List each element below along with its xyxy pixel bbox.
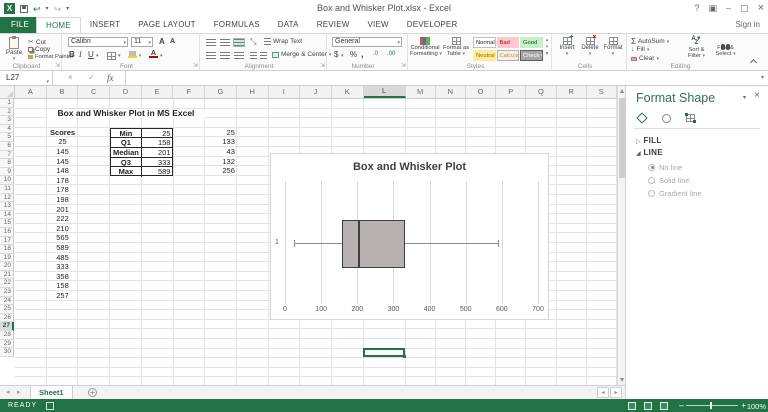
zoom-level[interactable]: 100% — [747, 402, 766, 411]
collapse-ribbon-icon[interactable] — [750, 59, 757, 66]
cell-style-normal[interactable]: Normal — [473, 37, 496, 48]
underline-button[interactable]: U — [88, 50, 94, 59]
sign-in-link[interactable]: Sign in — [736, 17, 760, 33]
find-select-icon — [712, 37, 739, 45]
undo-dropdown-icon[interactable]: ▾ — [46, 5, 49, 12]
tab-file[interactable]: FILE — [0, 17, 40, 33]
font-color-dropdown-icon[interactable]: ▾ — [160, 53, 163, 59]
column-header-S[interactable]: S — [587, 86, 617, 98]
stats-row: Median201 — [111, 148, 172, 158]
cut-icon: ✂ — [28, 38, 34, 46]
format-painter-icon — [28, 55, 33, 59]
x-tick-label: 0 — [283, 306, 287, 313]
stat-label[interactable]: Q1 — [111, 138, 142, 148]
median-line — [358, 220, 360, 268]
score-cell[interactable]: 158 — [47, 281, 79, 291]
save-icon[interactable] — [20, 5, 28, 13]
accounting-dropdown-icon[interactable]: ▾ — [341, 53, 344, 59]
italic-button[interactable]: I — [79, 50, 82, 59]
line-option-solid-line[interactable]: Solid line — [648, 175, 689, 185]
column-header-L[interactable]: L — [364, 86, 406, 98]
vertical-scrollbar[interactable] — [617, 86, 625, 385]
font-color-icon[interactable]: A — [149, 49, 158, 58]
minimize-icon[interactable]: – — [726, 3, 731, 13]
score-cell[interactable]: 25 — [47, 137, 79, 147]
grid-line — [15, 376, 617, 377]
tab-review[interactable]: REVIEW — [308, 17, 359, 33]
row-header-10[interactable]: 10 — [0, 176, 14, 185]
font-size-select[interactable]: 11▾ — [131, 37, 153, 47]
effects-icon[interactable] — [660, 113, 672, 125]
stat-label[interactable]: Q3 — [111, 158, 142, 168]
tab-view[interactable]: VIEW — [358, 17, 397, 33]
column-header-K[interactable]: K — [332, 86, 364, 98]
close-icon[interactable]: × — [758, 2, 764, 14]
column-header-P[interactable]: P — [496, 86, 526, 98]
row-header-27[interactable]: 27 — [0, 322, 14, 331]
qat-customize-icon[interactable]: ▾ — [66, 5, 69, 12]
fill-icon: ↓ — [631, 46, 635, 53]
grid-line — [15, 328, 617, 329]
column-header-R[interactable]: R — [557, 86, 587, 98]
ribbon-tab-row: FILE HOME INSERTPAGE LAYOUTFORMULASDATAR… — [0, 17, 768, 33]
alignment-dialog-launcher[interactable]: ⇲ — [320, 62, 325, 69]
status-bar: READY – + 100% — [0, 399, 768, 412]
hscroll-right-icon[interactable]: ▸ — [610, 387, 622, 398]
box-whisker-chart[interactable]: Box and Whisker Plot01002003004005006007… — [270, 153, 549, 320]
score-cell[interactable]: 485 — [47, 253, 79, 263]
row-header-9[interactable]: 9 — [0, 168, 14, 177]
radio-icon — [648, 164, 655, 171]
row-header-8[interactable]: 8 — [0, 159, 14, 168]
grid-line — [15, 367, 617, 368]
insert-function-icon[interactable]: fx — [107, 71, 114, 85]
cut-button[interactable]: ✂Cut — [28, 38, 46, 46]
score-cell[interactable]: 589 — [47, 243, 79, 253]
grid-line — [15, 348, 617, 349]
zoom-out-icon[interactable]: – — [679, 400, 684, 410]
score-cell[interactable]: 333 — [47, 262, 79, 272]
zoom-slider[interactable] — [686, 405, 738, 406]
column-header-E[interactable]: E — [142, 86, 174, 98]
cell-style-calculation[interactable]: Calculation — [497, 50, 520, 61]
column-header-J[interactable]: J — [300, 86, 332, 98]
clipboard-dialog-launcher[interactable]: ⇲ — [55, 62, 60, 69]
row-header-14[interactable]: 14 — [0, 211, 14, 220]
enter-icon[interactable]: ✓ — [88, 71, 95, 85]
cell-styles-gallery: NormalBadGoodNeutralCalculationCheck Cel… — [473, 37, 543, 62]
sort-filter-icon: A▼Z — [683, 37, 710, 45]
row-header-6[interactable]: 6 — [0, 142, 14, 151]
row-header-28[interactable]: 28 — [0, 331, 14, 340]
y-category-label: 1 — [275, 239, 279, 246]
stats-row: Q3333 — [111, 158, 172, 168]
quick-access-toolbar: X ↩▾ ↪ ▾ — [4, 2, 69, 15]
stat-value[interactable]: 201 — [143, 148, 171, 158]
clipboard-group: Paste ▾ ✂Cut Copy Format Painter Clipboa… — [0, 34, 62, 70]
fill-color-icon[interactable] — [128, 51, 137, 58]
sheet-title: Box and Whisker Plot in MS Excel — [47, 109, 206, 119]
stat-value[interactable]: 333 — [143, 158, 171, 168]
column-header-I[interactable]: I — [269, 86, 301, 98]
row-header-15[interactable]: 15 — [0, 219, 14, 228]
score-cell[interactable]: 145 — [47, 157, 79, 167]
align-right-icon[interactable] — [234, 52, 244, 59]
cancel-icon[interactable]: × — [68, 71, 73, 85]
row-header-19[interactable]: 19 — [0, 254, 14, 263]
number-format-select[interactable]: General▾ — [332, 37, 402, 47]
number-group: General▾ $ ▾ % , .0 .00 Number ⇲ — [327, 34, 408, 70]
editing-group: ΣAutoSum▾ ↓Fill▾ Clear▾ A▼Z Sort & Filte… — [627, 34, 742, 70]
stat-label[interactable]: Max — [111, 167, 142, 177]
formula-bar-expand-icon[interactable]: ▾ — [761, 71, 764, 85]
grid-line — [15, 146, 617, 147]
row-header-3[interactable]: 3 — [0, 116, 14, 125]
grid-line — [15, 357, 617, 358]
find-select-button[interactable]: Find & Select ▾ — [712, 37, 739, 57]
row-header-24[interactable]: 24 — [0, 297, 14, 306]
column-headers: ABCDEFGHIJKLMNOPQRS — [15, 86, 617, 99]
sheet-nav-left-icon[interactable]: ◂ — [6, 386, 10, 399]
score-cell[interactable]: 198 — [47, 195, 79, 205]
merge-center-button[interactable]: Merge & Center▾ — [272, 51, 331, 58]
insert-icon: + — [563, 37, 572, 45]
row-header-2[interactable]: 2 — [0, 108, 14, 117]
pane-close-icon[interactable]: × — [754, 90, 760, 101]
font-dialog-launcher[interactable]: ⇲ — [193, 62, 198, 69]
delete-icon: × — [586, 37, 595, 45]
stat-extra[interactable]: 256 — [205, 166, 235, 176]
macro-record-icon[interactable] — [46, 402, 54, 410]
score-cell[interactable]: 210 — [47, 224, 79, 234]
row-header-7[interactable]: 7 — [0, 151, 14, 160]
align-left-icon[interactable] — [206, 52, 216, 59]
column-header-F[interactable]: F — [173, 86, 205, 98]
stat-label[interactable]: Median — [111, 148, 142, 158]
radio-icon — [648, 190, 655, 197]
x-tick-label: 500 — [460, 306, 472, 313]
pane-title: Format Shape — [636, 91, 715, 105]
stat-extra[interactable]: 25 — [205, 128, 235, 138]
autosum-button[interactable]: ΣAutoSum▾ — [631, 37, 669, 46]
column-header-G[interactable]: G — [205, 86, 237, 98]
row-header-23[interactable]: 23 — [0, 288, 14, 297]
wrap-text-button[interactable]: Wrap Text — [264, 38, 302, 45]
row-header-21[interactable]: 21 — [0, 271, 14, 280]
align-top-icon[interactable] — [206, 39, 216, 46]
hscroll-left-icon[interactable]: ◂ — [597, 387, 609, 398]
row-header-29[interactable]: 29 — [0, 340, 14, 349]
stats-row: Max589 — [111, 167, 172, 177]
fill-button[interactable]: ↓Fill▾ — [631, 46, 649, 53]
clear-icon — [631, 57, 637, 61]
pane-dropdown-icon[interactable]: ▾ — [743, 94, 746, 101]
page-layout-view-icon[interactable] — [644, 402, 652, 410]
whisker-cap-max — [498, 240, 499, 247]
x-tick-label: 300 — [388, 306, 400, 313]
whisker-cap-min — [294, 240, 295, 247]
column-header-A[interactable]: A — [15, 86, 47, 98]
row-headers: 1234567891011121314151617181920212223242… — [0, 99, 15, 357]
row-header-25[interactable]: 25 — [0, 305, 14, 314]
window-title: Box and Whisker Plot.xlsx - Excel — [150, 3, 618, 13]
autosum-icon: Σ — [631, 37, 636, 46]
conditional-formatting-button[interactable]: Conditional Formatting ▾ — [410, 37, 440, 57]
column-header-D[interactable]: D — [110, 86, 142, 98]
tab-data[interactable]: DATA — [269, 17, 308, 33]
row-header-12[interactable]: 12 — [0, 194, 14, 203]
tab-formulas[interactable]: FORMULAS — [205, 17, 269, 33]
number-dialog-launcher[interactable]: ⇲ — [401, 62, 406, 69]
clear-button[interactable]: Clear▾ — [631, 55, 659, 62]
grid-line — [15, 127, 617, 128]
score-cell[interactable]: 148 — [47, 166, 79, 176]
x-tick-label: 400 — [424, 306, 436, 313]
score-cell[interactable]: 145 — [47, 147, 79, 157]
increase-indent-icon[interactable] — [260, 52, 267, 59]
column-header-H[interactable]: H — [237, 86, 269, 98]
format-as-table-button[interactable]: Format as Table ▾ — [441, 37, 471, 57]
chart-gridline — [502, 181, 503, 304]
stat-extra[interactable]: 133 — [205, 137, 235, 147]
font-group: Calibri▾ 11▾ A A B I U ▾ ▾ ▾ A ▾ Font ⇲ — [62, 34, 200, 70]
size-properties-icon[interactable] — [684, 113, 696, 125]
line-option-no-line[interactable]: No line — [648, 162, 682, 172]
stat-extra[interactable]: 132 — [205, 157, 235, 167]
row-header-5[interactable]: 5 — [0, 133, 14, 142]
comma-icon[interactable]: , — [361, 49, 364, 59]
score-cell[interactable]: 178 — [47, 176, 79, 186]
sheet-nav-right-icon[interactable]: ▸ — [17, 386, 21, 399]
merge-center-icon — [272, 52, 279, 58]
fill-color-dropdown-icon[interactable]: ▾ — [139, 53, 142, 59]
row-header-11[interactable]: 11 — [0, 185, 14, 194]
sheet-tab-bar: ◂ ▸ Sheet1 + ◂ ▸ — [0, 385, 625, 399]
x-tick-label: 700 — [532, 306, 544, 313]
score-cell[interactable]: 201 — [47, 205, 79, 215]
paste-icon — [9, 37, 19, 49]
grid-line — [15, 338, 617, 339]
align-bottom-icon[interactable] — [234, 39, 244, 46]
line-expand-icon: ◢ — [636, 151, 641, 157]
chart-gridline — [285, 181, 286, 304]
sheet-tab-sheet1[interactable]: Sheet1 — [30, 386, 73, 399]
shrink-font-icon[interactable]: A — [170, 38, 175, 45]
borders-dropdown-icon[interactable]: ▾ — [118, 53, 121, 59]
copy-button[interactable]: Copy — [28, 46, 50, 53]
add-sheet-button[interactable]: + — [88, 388, 97, 397]
tab-page-layout[interactable]: PAGE LAYOUT — [129, 17, 204, 33]
cell-style-neutral[interactable]: Neutral — [473, 50, 496, 61]
cell-style-bad[interactable]: Bad — [497, 37, 520, 48]
row-header-30[interactable]: 30 — [0, 348, 14, 357]
column-header-Q[interactable]: Q — [526, 86, 556, 98]
row-header-22[interactable]: 22 — [0, 279, 14, 288]
fill-line-icon[interactable] — [636, 113, 648, 125]
worksheet: ABCDEFGHIJKLMNOPQRS 12345678910111213141… — [0, 86, 625, 385]
restore-icon[interactable]: ▢ — [740, 3, 749, 14]
borders-icon[interactable] — [107, 52, 116, 60]
radio-icon — [648, 177, 655, 184]
percent-icon[interactable]: % — [350, 50, 357, 59]
redo-icon[interactable]: ↪ — [54, 4, 62, 14]
wrap-text-icon — [264, 38, 271, 45]
row-header-13[interactable]: 13 — [0, 202, 14, 211]
chart-gridline — [538, 181, 539, 304]
box[interactable] — [342, 220, 405, 268]
radio-label: Gradient line — [659, 189, 702, 198]
styles-group: Conditional Formatting ▾ Format as Table… — [408, 34, 552, 70]
selected-cell[interactable] — [363, 348, 405, 358]
tab-home[interactable]: HOME — [36, 17, 81, 33]
stat-value[interactable]: 158 — [143, 138, 171, 148]
undo-icon[interactable]: ↩ — [33, 4, 41, 14]
scroll-down-icon[interactable] — [620, 378, 624, 382]
row-header-17[interactable]: 17 — [0, 237, 14, 246]
format-button[interactable]: Format ▾ — [602, 37, 624, 57]
ribbon-display-icon[interactable]: ▣ — [709, 3, 718, 14]
selection-fill-handle[interactable] — [403, 355, 406, 358]
align-middle-icon[interactable] — [220, 39, 230, 46]
title-bar: X ↩▾ ↪ ▾ Box and Whisker Plot.xlsx - Exc… — [0, 0, 768, 17]
score-cell[interactable]: 222 — [47, 214, 79, 224]
stats-row: Q1158 — [111, 138, 172, 148]
formula-bar: L27▾ × ✓ fx ▾ — [0, 71, 768, 86]
insert-button[interactable]: + Insert ▾ — [556, 37, 578, 57]
zoom-in-icon[interactable]: + — [741, 401, 746, 410]
stats-table: Min25Q1158Median201Q3333Max589 — [110, 128, 173, 176]
copy-icon — [28, 47, 33, 52]
format-icon — [609, 37, 618, 45]
fill-collapse-icon: ▷ — [636, 139, 641, 145]
cells-area[interactable]: Box and Whisker Plot in MS ExcelScores25… — [15, 99, 617, 385]
bold-button[interactable]: B — [69, 50, 75, 59]
tab-insert[interactable]: INSERT — [81, 17, 129, 33]
sort-filter-button[interactable]: A▼Z Sort & Filter ▾ — [683, 37, 710, 59]
cells-group: + Insert ▾ × Delete ▾ Format ▾ Cells — [552, 34, 627, 70]
decrease-decimal-icon[interactable]: .00 — [387, 51, 395, 57]
score-cell[interactable]: 358 — [47, 272, 79, 282]
x-tick-label: 100 — [315, 306, 327, 313]
row-header-20[interactable]: 20 — [0, 262, 14, 271]
help-icon[interactable]: ? — [695, 3, 700, 13]
formula-input[interactable] — [125, 71, 754, 85]
row-header-26[interactable]: 26 — [0, 314, 14, 323]
tab-developer[interactable]: DEVELOPER — [398, 17, 467, 33]
increase-decimal-icon[interactable]: .0 — [373, 51, 378, 57]
pane-divider — [634, 128, 760, 129]
excel-app-icon[interactable]: X — [4, 3, 15, 14]
x-tick-label: 600 — [496, 306, 508, 313]
grid-line — [15, 136, 617, 137]
score-cell[interactable]: 178 — [47, 185, 79, 195]
stat-value[interactable]: 25 — [143, 129, 171, 139]
accounting-icon[interactable]: $ — [334, 50, 338, 59]
select-all-corner[interactable] — [0, 86, 15, 99]
delete-button[interactable]: × Delete ▾ — [579, 37, 601, 57]
format-shape-pane: Format Shape ▾ × ▷ FILL ◢ LINE No lineSo… — [625, 86, 768, 399]
name-box[interactable]: L27▾ — [0, 71, 53, 85]
scores-header: Scores — [47, 128, 79, 138]
decrease-indent-icon[interactable] — [250, 52, 257, 59]
score-cell[interactable]: 565 — [47, 233, 79, 243]
conditional-formatting-icon — [420, 37, 430, 45]
column-header-N[interactable]: N — [436, 86, 466, 98]
row-header-4[interactable]: 4 — [0, 125, 14, 134]
fill-section-header[interactable]: ▷ FILL — [636, 136, 662, 145]
paste-button[interactable]: Paste ▾ — [3, 37, 25, 62]
line-option-gradient-line[interactable]: Gradient line — [648, 188, 702, 198]
zoom-slider-thumb[interactable] — [710, 402, 712, 409]
gallery-scroll[interactable]: ▴▾▼ — [544, 37, 550, 58]
stat-value[interactable]: 589 — [143, 167, 171, 177]
center-icon[interactable] — [220, 52, 230, 59]
column-header-B[interactable]: B — [47, 86, 79, 98]
stat-extra[interactable]: 43 — [205, 147, 235, 157]
font-family-select[interactable]: Calibri▾ — [68, 37, 128, 47]
radio-label: No line — [659, 163, 682, 172]
alignment-group: ⤡ Wrap Text Merge & Center▾ Alignment ⇲ — [200, 34, 327, 70]
grow-font-icon[interactable]: A — [159, 37, 165, 46]
radio-label: Solid line — [659, 176, 689, 185]
cell-style-good[interactable]: Good — [520, 37, 543, 48]
line-section-header[interactable]: ◢ LINE — [636, 148, 663, 157]
format-as-table-icon — [452, 37, 461, 45]
stats-row: Min25 — [111, 129, 172, 139]
stat-label[interactable]: Min — [111, 129, 142, 139]
score-cell[interactable]: 257 — [47, 291, 79, 301]
x-tick-label: 200 — [351, 306, 363, 313]
row-header-18[interactable]: 18 — [0, 245, 14, 254]
excel-window: X ↩▾ ↪ ▾ Box and Whisker Plot.xlsx - Exc… — [0, 0, 768, 412]
normal-view-icon[interactable] — [628, 402, 636, 410]
column-header-M[interactable]: M — [406, 86, 436, 98]
status-mode: READY — [8, 402, 37, 409]
scroll-up-icon[interactable] — [620, 89, 624, 93]
cell-style-check-cell[interactable]: Check Cell — [520, 50, 543, 61]
ribbon: Paste ▾ ✂Cut Copy Format Painter Clipboa… — [0, 33, 768, 71]
orientation-icon[interactable]: ⤡ — [250, 37, 256, 47]
underline-dropdown-icon[interactable]: ▾ — [96, 53, 99, 59]
column-header-C[interactable]: C — [78, 86, 110, 98]
row-header-16[interactable]: 16 — [0, 228, 14, 237]
page-break-view-icon[interactable] — [660, 402, 668, 410]
chart-title: Box and Whisker Plot — [271, 161, 548, 173]
column-header-O[interactable]: O — [466, 86, 496, 98]
row-header-1[interactable]: 1 — [0, 99, 14, 108]
